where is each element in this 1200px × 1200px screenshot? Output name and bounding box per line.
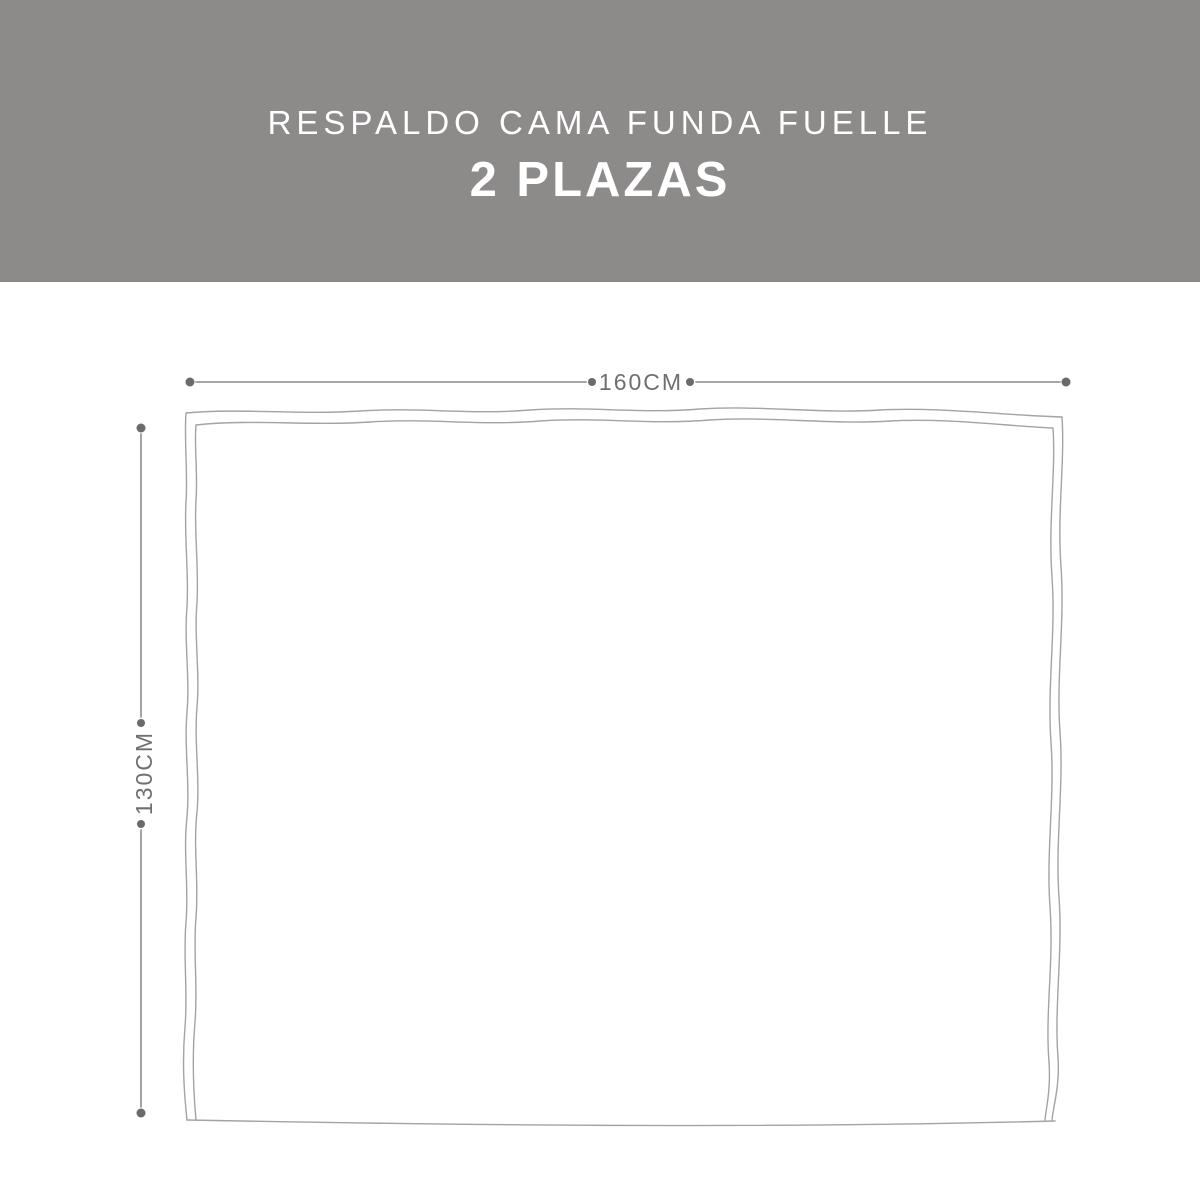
product-size-subtitle: 2 PLAZAS	[470, 151, 731, 210]
height-dimension: 130CM	[131, 424, 157, 1118]
height-dim-inner-dot-bottom	[137, 820, 145, 828]
cover-outline-outer	[184, 408, 1063, 1120]
height-dim-end-dot-bottom	[137, 1109, 146, 1118]
width-dim-inner-dot-left	[588, 378, 596, 386]
width-dimension: 160CM	[186, 369, 1071, 395]
header-banner: RESPALDO CAMA FUNDA FUELLE 2 PLAZAS	[0, 0, 1200, 282]
dimension-diagram-svg: 160CM 130CM	[0, 282, 1200, 1200]
width-dim-inner-dot-right	[686, 378, 694, 386]
page: RESPALDO CAMA FUNDA FUELLE 2 PLAZAS 160C…	[0, 0, 1200, 1200]
product-title: RESPALDO CAMA FUNDA FUELLE	[268, 103, 933, 143]
cover-bottom-edge	[187, 1120, 1055, 1126]
height-dim-end-dot-top	[137, 424, 146, 433]
width-dimension-label: 160CM	[599, 369, 683, 395]
height-dimension-label: 130CM	[131, 731, 157, 815]
height-dim-inner-dot-top	[137, 719, 145, 727]
width-dim-end-dot-left	[186, 378, 195, 387]
width-dim-end-dot-right	[1062, 378, 1071, 387]
cover-outline-inner	[193, 419, 1054, 1120]
dimension-diagram: 160CM 130CM	[0, 282, 1200, 1200]
